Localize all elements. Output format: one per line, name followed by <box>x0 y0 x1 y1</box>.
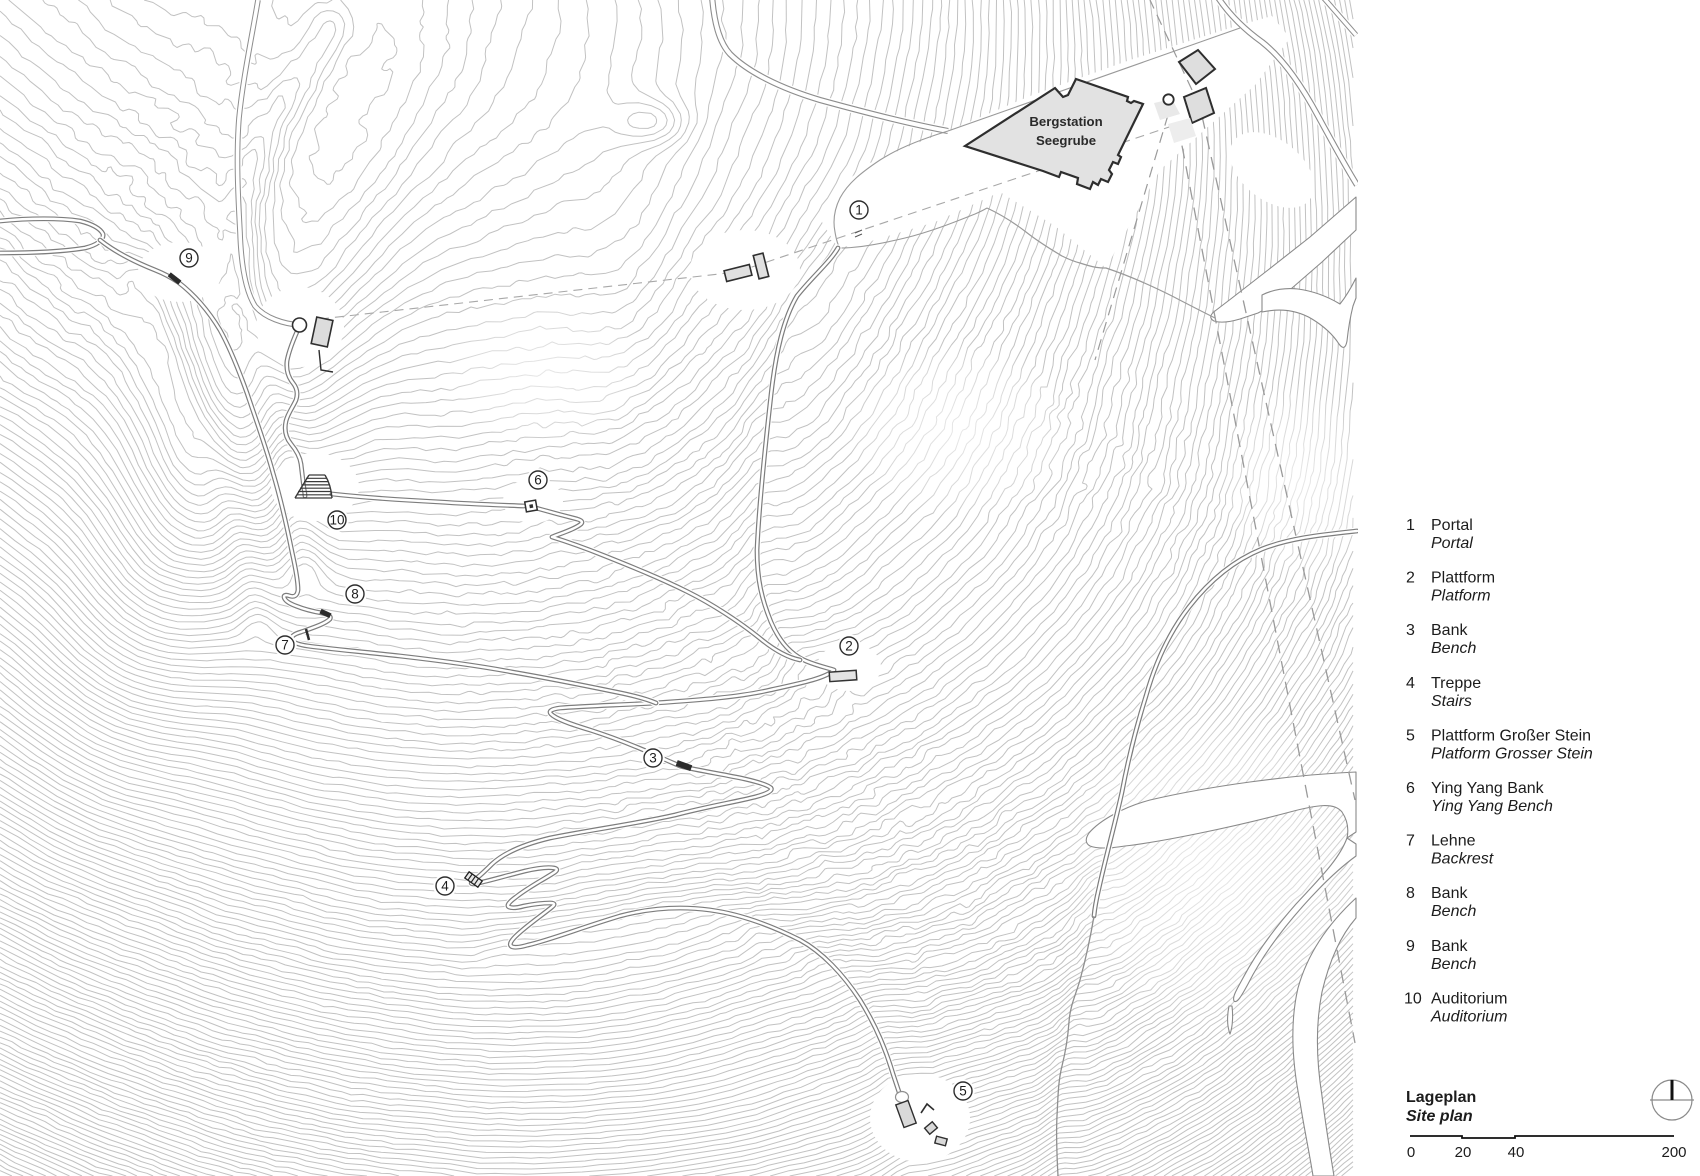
svg-text:2: 2 <box>1406 570 1415 587</box>
svg-text:8: 8 <box>1406 885 1415 902</box>
svg-text:Bank: Bank <box>1431 622 1468 639</box>
svg-text:Ying Yang Bench: Ying Yang Bench <box>1431 798 1553 815</box>
svg-text:Ying Yang Bank: Ying Yang Bank <box>1431 780 1545 797</box>
svg-text:8: 8 <box>351 587 359 602</box>
svg-text:Plattform Großer Stein: Plattform Großer Stein <box>1431 727 1591 744</box>
svg-text:3: 3 <box>1406 622 1415 639</box>
svg-text:20: 20 <box>1455 1144 1472 1161</box>
svg-text:3: 3 <box>649 751 657 766</box>
svg-text:Bench: Bench <box>1431 903 1476 920</box>
svg-text:Seegrube: Seegrube <box>1036 133 1096 148</box>
svg-text:6: 6 <box>1406 780 1415 797</box>
svg-text:1: 1 <box>855 203 863 218</box>
svg-text:5: 5 <box>959 1084 967 1099</box>
svg-text:Plattform: Plattform <box>1431 570 1495 587</box>
svg-text:4: 4 <box>441 879 449 894</box>
svg-text:200: 200 <box>1661 1144 1686 1161</box>
svg-text:Auditorium: Auditorium <box>1430 1008 1507 1025</box>
svg-text:Portal: Portal <box>1431 517 1473 534</box>
svg-text:0: 0 <box>1407 1144 1415 1161</box>
svg-text:Lehne: Lehne <box>1431 833 1476 850</box>
svg-text:2: 2 <box>845 639 853 654</box>
svg-text:Lageplan: Lageplan <box>1406 1089 1476 1106</box>
svg-text:6: 6 <box>534 473 542 488</box>
svg-text:Bergstation: Bergstation <box>1029 114 1102 129</box>
svg-text:9: 9 <box>1406 938 1415 955</box>
svg-text:Bank: Bank <box>1431 938 1468 955</box>
svg-text:Auditorium: Auditorium <box>1431 990 1507 1007</box>
svg-text:Site plan: Site plan <box>1406 1108 1473 1125</box>
svg-text:Platform: Platform <box>1431 588 1491 605</box>
svg-text:Bank: Bank <box>1431 885 1468 902</box>
svg-text:Bench: Bench <box>1431 956 1476 973</box>
svg-text:Treppe: Treppe <box>1431 675 1481 692</box>
svg-text:Backrest: Backrest <box>1431 851 1494 868</box>
svg-text:1: 1 <box>1406 517 1415 534</box>
svg-text:7: 7 <box>281 638 289 653</box>
svg-text:40: 40 <box>1508 1144 1525 1161</box>
svg-text:Bench: Bench <box>1431 640 1476 657</box>
svg-text:7: 7 <box>1406 833 1415 850</box>
svg-text:9: 9 <box>185 251 193 266</box>
svg-text:4: 4 <box>1406 675 1415 692</box>
svg-text:10: 10 <box>329 513 344 528</box>
svg-text:Stairs: Stairs <box>1431 693 1472 710</box>
svg-text:5: 5 <box>1406 727 1415 744</box>
svg-text:10: 10 <box>1404 990 1422 1007</box>
svg-text:Platform Grosser Stein: Platform Grosser Stein <box>1431 745 1593 762</box>
svg-text:Portal: Portal <box>1431 535 1473 552</box>
